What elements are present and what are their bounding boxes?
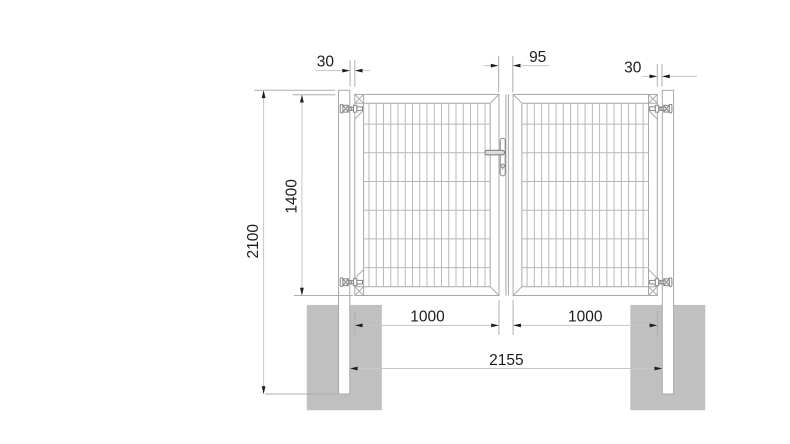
svg-text:30: 30 (624, 59, 642, 76)
svg-text:1000: 1000 (410, 308, 445, 325)
svg-text:2100: 2100 (245, 224, 262, 259)
svg-text:30: 30 (317, 54, 335, 71)
svg-text:95: 95 (529, 49, 546, 66)
svg-text:1400: 1400 (284, 179, 301, 214)
svg-text:2155: 2155 (489, 352, 523, 369)
svg-text:1000: 1000 (568, 308, 603, 325)
